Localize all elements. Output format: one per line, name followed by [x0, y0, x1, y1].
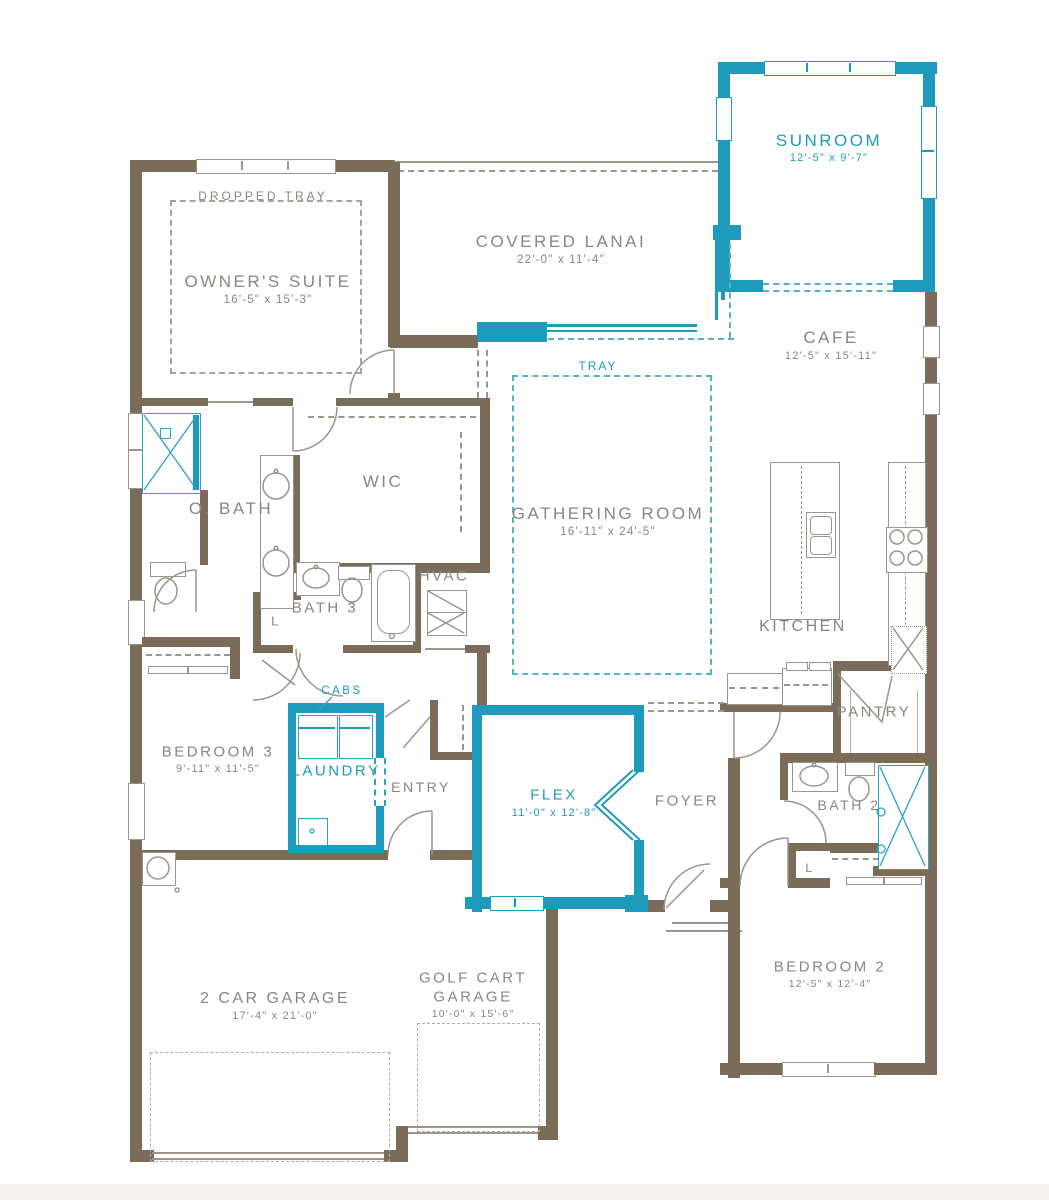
utility-sink-drain	[310, 829, 314, 833]
owners-suite-dims: 16'-5" x 15'-3"	[224, 294, 313, 306]
golf-cart-garage-dims: 10'-0" x 15'-6"	[432, 1008, 515, 1020]
linen1-label: L	[271, 614, 281, 629]
corridor-door-leaf	[262, 660, 295, 685]
gathering-room-dims: 16'-11" x 24'-5"	[560, 526, 655, 538]
range-burner	[890, 551, 904, 565]
range-burner	[908, 551, 922, 565]
door-arc-bedroom2	[740, 838, 788, 886]
bedroom2-label: BEDROOM 2	[774, 959, 887, 976]
two-car-garage-label: 2 CAR GARAGE	[200, 990, 350, 1008]
faucet-dot	[274, 469, 278, 473]
gathering-room-label: GATHERING ROOM	[512, 504, 704, 524]
faucet-dot	[812, 763, 816, 767]
page-edge-strip	[0, 1184, 1049, 1200]
closet-door-leaf	[403, 717, 430, 748]
dropped-tray-label: DROPPED TRAY	[198, 189, 328, 203]
bath-sink	[800, 766, 828, 786]
range-burner	[890, 530, 904, 544]
bath-sink	[263, 550, 289, 576]
tub-faucet	[390, 634, 395, 639]
bedroom3-label: BEDROOM 3	[162, 744, 275, 761]
shower-knob	[877, 845, 885, 853]
entry-label: ENTRY	[391, 779, 451, 795]
door-leaf	[666, 870, 704, 908]
hvac-diagonal	[428, 591, 464, 611]
bath-sink	[263, 473, 289, 499]
laundry-label: LAUNDRY	[292, 763, 381, 780]
sunroom-dims: 12'-5" x 9'-7"	[790, 152, 868, 164]
door-arc-owners-suite	[350, 350, 394, 394]
hvac-label: HVAC	[419, 568, 470, 585]
flex-dims: 11'-0" x 12'-8"	[512, 807, 597, 819]
faucet-dot	[274, 546, 278, 550]
bath3-label: BATH 3	[292, 600, 358, 617]
pantry-label: PANTRY	[837, 704, 911, 721]
fixtures-overlay	[0, 0, 1049, 1200]
covered-lanai-dims: 22'-0" x 11'-4"	[517, 254, 605, 266]
door-arc-bedroom3	[253, 653, 300, 700]
bedroom3-dims: 9'-11" x 11'-5"	[176, 763, 260, 775]
two-car-garage-dims: 17'-4" x 21'-0"	[232, 1010, 318, 1022]
golf-cart-garage-label: GOLF CART GARAGE	[398, 969, 548, 1007]
linen2-label: L	[805, 861, 814, 875]
o-bath-label: O. BATH	[189, 499, 273, 519]
wic-label: WIC	[363, 472, 404, 492]
cabs-label: CABS	[321, 685, 362, 697]
door-arc-garage-entry	[388, 811, 432, 855]
cabs-callout-line	[318, 697, 332, 711]
foyer-label: FOYER	[655, 793, 719, 810]
faucet-dot	[314, 565, 318, 569]
bath-sink	[303, 568, 329, 588]
flex-label: FLEX	[530, 787, 578, 804]
covered-lanai-label: COVERED LANAI	[476, 232, 646, 252]
water-heater	[147, 857, 169, 879]
floor-drain	[175, 888, 179, 892]
cafe-dims: 12'-5" x 15'-11"	[785, 350, 877, 362]
tray-label: TRAY	[578, 359, 617, 373]
door-arc-hall	[734, 712, 780, 758]
floor-plan: DROPPED TRAY OWNER'S SUITE 16'-5" x 15'-…	[0, 0, 1049, 1200]
corridor-door-leaf	[385, 700, 410, 717]
door-arc-toilet-room	[154, 570, 196, 612]
kitchen-label: KITCHEN	[759, 618, 847, 636]
bedroom2-dims: 12'-5" x 12'-4"	[789, 978, 872, 990]
cafe-label: CAFE	[803, 328, 858, 348]
bath2-label: BATH 2	[818, 797, 881, 813]
owners-suite-label: OWNER'S SUITE	[184, 272, 351, 292]
toilet-bowl	[342, 578, 362, 602]
door-arc-wic	[293, 407, 337, 451]
range-burner	[908, 530, 922, 544]
sunroom-label: SUNROOM	[776, 131, 882, 151]
